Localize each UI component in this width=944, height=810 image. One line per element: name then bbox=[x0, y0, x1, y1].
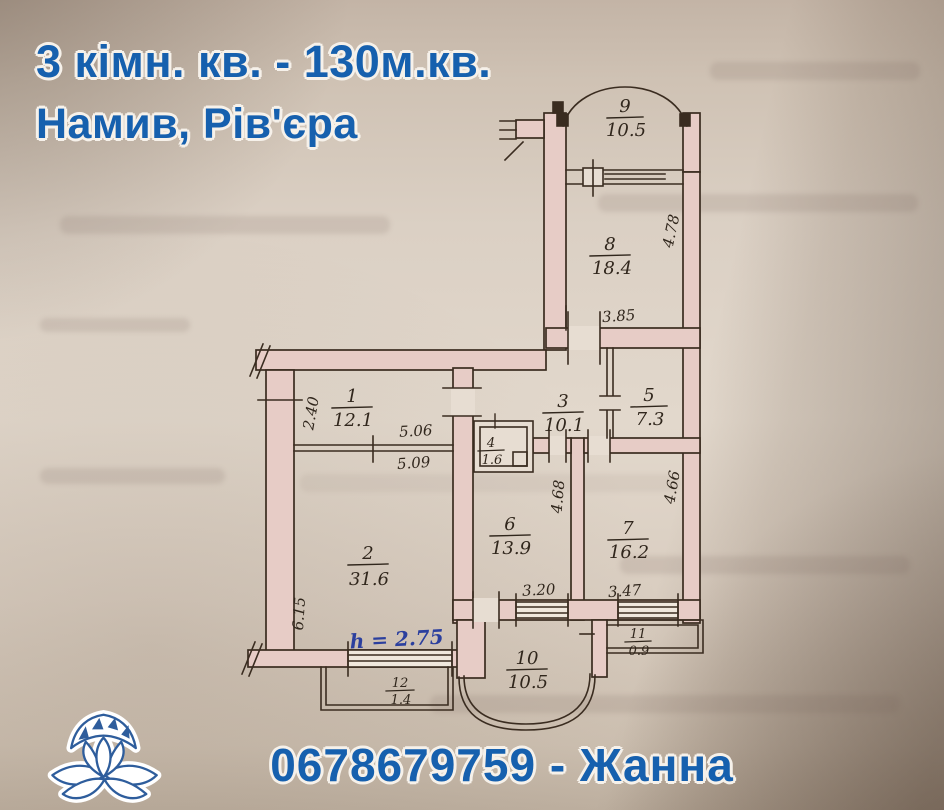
svg-text:10: 10 bbox=[516, 648, 539, 669]
dim-room7-bottom: 3.47 bbox=[607, 581, 642, 601]
dim-room8-right: 4.78 bbox=[659, 213, 684, 250]
dim-room2-left: 6.15 bbox=[289, 596, 309, 631]
svg-text:6: 6 bbox=[504, 514, 515, 535]
floorplan-drawing: 910.5 818.4 112.1 310.1 57.3 41.6 231.6 … bbox=[0, 0, 944, 810]
svg-text:12: 12 bbox=[392, 676, 409, 691]
svg-text:18.4: 18.4 bbox=[592, 258, 632, 279]
room-label-2: 231.6 bbox=[348, 543, 389, 590]
svg-text:10.1: 10.1 bbox=[544, 415, 584, 436]
svg-text:3: 3 bbox=[557, 391, 568, 412]
svg-text:10.5: 10.5 bbox=[508, 672, 548, 693]
svg-text:0.9: 0.9 bbox=[629, 644, 650, 659]
dim-room1-inner: 5.06 bbox=[399, 421, 434, 441]
ceiling-height-note: h = 2.75 bbox=[349, 625, 444, 654]
dim-room1-outer: 5.09 bbox=[396, 453, 431, 473]
room-label-8: 818.4 bbox=[590, 234, 632, 279]
svg-text:9: 9 bbox=[619, 96, 630, 117]
phone-contact: 0678679759 - Жанна bbox=[60, 738, 944, 792]
svg-text:1: 1 bbox=[346, 386, 357, 407]
dim-room8-bottom: 3.85 bbox=[601, 306, 636, 326]
svg-text:31.6: 31.6 bbox=[349, 569, 389, 590]
svg-text:1.4: 1.4 bbox=[391, 693, 412, 708]
room-label-6: 613.9 bbox=[490, 514, 531, 559]
svg-text:10.5: 10.5 bbox=[606, 120, 646, 141]
room-label-11: 110.9 bbox=[625, 627, 651, 659]
room-label-3: 310.1 bbox=[543, 391, 584, 436]
room-label-10: 1010.5 bbox=[507, 648, 548, 693]
svg-text:11: 11 bbox=[630, 627, 647, 642]
dim-room6-bottom: 3.20 bbox=[522, 580, 557, 600]
svg-text:12.1: 12.1 bbox=[333, 410, 373, 431]
svg-text:1.6: 1.6 bbox=[482, 453, 503, 468]
svg-text:7.3: 7.3 bbox=[636, 409, 665, 430]
svg-text:2: 2 bbox=[361, 543, 373, 564]
room-label-1: 112.1 bbox=[332, 386, 373, 431]
svg-text:5: 5 bbox=[643, 385, 654, 406]
svg-text:8: 8 bbox=[604, 234, 615, 255]
svg-text:4: 4 bbox=[486, 436, 495, 451]
room-label-9: 910.5 bbox=[606, 96, 646, 141]
photo-of-floorplan: 3 кімн. кв. - 130м.кв. Намив, Рів'єра bbox=[0, 0, 944, 810]
room-label-12: 121.4 bbox=[386, 676, 414, 708]
dim-room6-right: 4.68 bbox=[548, 479, 569, 515]
svg-text:7: 7 bbox=[622, 518, 634, 539]
room-label-5: 57.3 bbox=[631, 385, 667, 430]
svg-text:16.2: 16.2 bbox=[609, 542, 649, 563]
room-label-7: 716.2 bbox=[608, 518, 649, 563]
dim-room7-right: 4.66 bbox=[660, 469, 684, 506]
svg-text:13.9: 13.9 bbox=[491, 538, 531, 559]
